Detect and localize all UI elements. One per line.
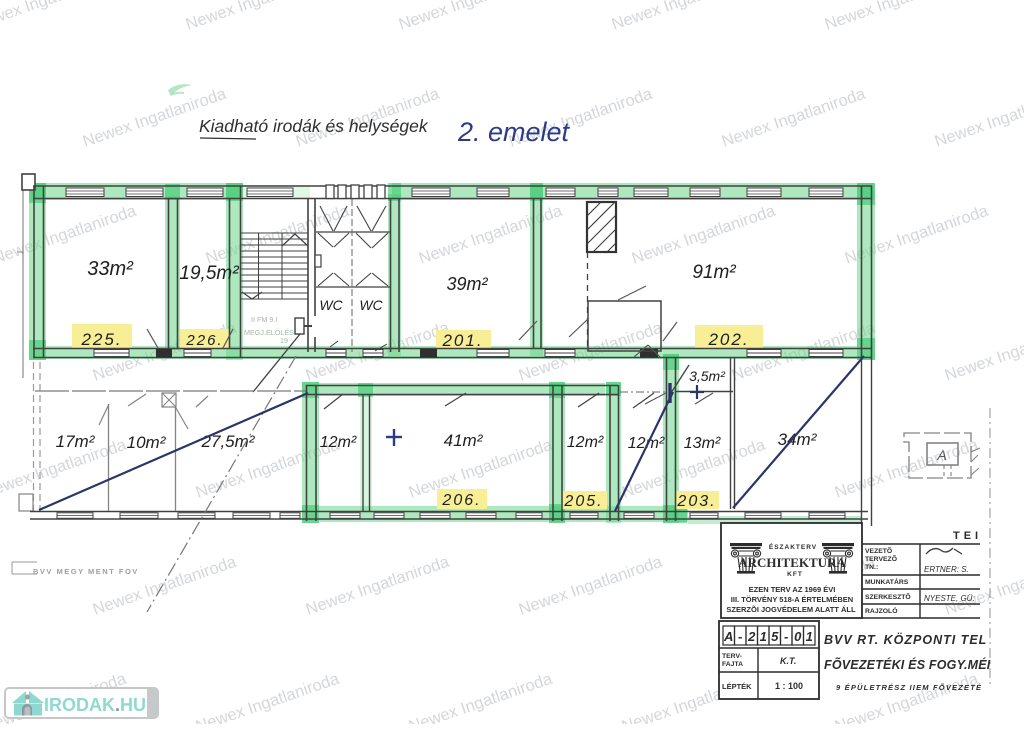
svg-text:NYESTE, GÜ:: NYESTE, GÜ: (924, 594, 975, 603)
svg-text:205.: 205. (563, 493, 603, 510)
svg-text:SZERZÕI JOGVÉDELEM ALATT ÁLL: SZERZÕI JOGVÉDELEM ALATT ÁLL (726, 605, 856, 614)
svg-text:2. emelet: 2. emelet (457, 117, 571, 147)
svg-text:27,5m²: 27,5m² (201, 432, 256, 451)
svg-text:K.T.: K.T. (780, 656, 796, 666)
svg-text:202.: 202. (707, 330, 749, 349)
svg-text:1 : 100: 1 : 100 (775, 681, 803, 691)
svg-text:19,5m²: 19,5m² (179, 263, 239, 284)
svg-text:TERVEZÕ: TERVEZÕ (865, 554, 897, 563)
svg-text:1: 1 (760, 629, 767, 644)
svg-text:91m²: 91m² (692, 262, 736, 283)
svg-text:ERTNER: S.: ERTNER: S. (924, 565, 969, 574)
svg-text:WC: WC (319, 297, 343, 313)
svg-text:A: A (936, 447, 946, 463)
svg-text:19: 19 (280, 336, 288, 345)
svg-text:A: A (723, 629, 733, 644)
svg-text:BVV MEGY MENT FOV: BVV MEGY MENT FOV (33, 567, 139, 576)
svg-text:13m²: 13m² (684, 435, 721, 452)
svg-text:II FM 9.I: II FM 9.I (251, 315, 277, 324)
svg-text:VEZETÕ: VEZETÕ (865, 546, 892, 555)
svg-text:-: - (738, 629, 742, 644)
svg-text:2: 2 (747, 629, 756, 644)
svg-text:9 ÉPÜLETRÉSZ IIEM FÕVEZETÉ: 9 ÉPÜLETRÉSZ IIEM FÕVEZETÉ (836, 683, 982, 692)
svg-text:TERV-: TERV- (722, 653, 742, 660)
svg-text:12m²: 12m² (628, 435, 665, 452)
svg-text:Kiadható irodák és helységek: Kiadható irodák és helységek (199, 116, 429, 136)
svg-text:ÉSZAKTERV: ÉSZAKTERV (769, 542, 817, 551)
svg-text:FÕVEZETÉKI ÉS FOGY.MÉI: FÕVEZETÉKI ÉS FOGY.MÉI (824, 657, 991, 672)
svg-text:226.: 226. (185, 332, 223, 349)
svg-text:10m²: 10m² (127, 433, 167, 452)
svg-text:BVV RT. KÖZPONTI TEL: BVV RT. KÖZPONTI TEL (824, 632, 987, 647)
svg-text:RAJZOLÓ: RAJZOLÓ (865, 606, 897, 615)
svg-text:-: - (784, 629, 788, 644)
svg-text:TEI: TEI (953, 530, 982, 542)
svg-text:17m²: 17m² (56, 432, 96, 451)
svg-text:39m²: 39m² (446, 274, 488, 294)
svg-text:III. TÖRVÉNY 518-A ÉRTELMÉBEN: III. TÖRVÉNY 518-A ÉRTELMÉBEN (731, 595, 853, 604)
svg-text:5: 5 (771, 629, 779, 644)
svg-text:IRODAK.HU: IRODAK.HU (44, 695, 146, 715)
svg-text:FAJTA: FAJTA (722, 661, 743, 668)
svg-text:3,5m²: 3,5m² (689, 368, 726, 384)
svg-text:203.: 203. (676, 493, 716, 510)
svg-text:LÉPTÉK: LÉPTÉK (722, 682, 752, 691)
svg-text:1: 1 (806, 629, 813, 644)
svg-text:206.: 206. (441, 492, 481, 509)
svg-text:MUNKATÁRS: MUNKATÁRS (865, 577, 909, 586)
svg-text:ARCHITEKTURA: ARCHITEKTURA (738, 555, 846, 570)
svg-text:SZERKESZTÕ: SZERKESZTÕ (865, 592, 911, 601)
svg-text:12m²: 12m² (567, 434, 604, 451)
svg-text:225.: 225. (80, 330, 122, 349)
svg-text:201.: 201. (441, 331, 483, 350)
svg-text:EZEN TERV AZ 1969 ÉVI: EZEN TERV AZ 1969 ÉVI (749, 585, 836, 594)
svg-text:41m²: 41m² (444, 431, 484, 450)
svg-text:0: 0 (794, 629, 802, 644)
svg-text:33m²: 33m² (87, 258, 134, 280)
svg-text:TN.:: TN.: (865, 564, 878, 571)
svg-text:WC: WC (359, 297, 383, 313)
svg-text:KFT: KFT (787, 571, 803, 578)
svg-text:12m²: 12m² (320, 434, 357, 451)
